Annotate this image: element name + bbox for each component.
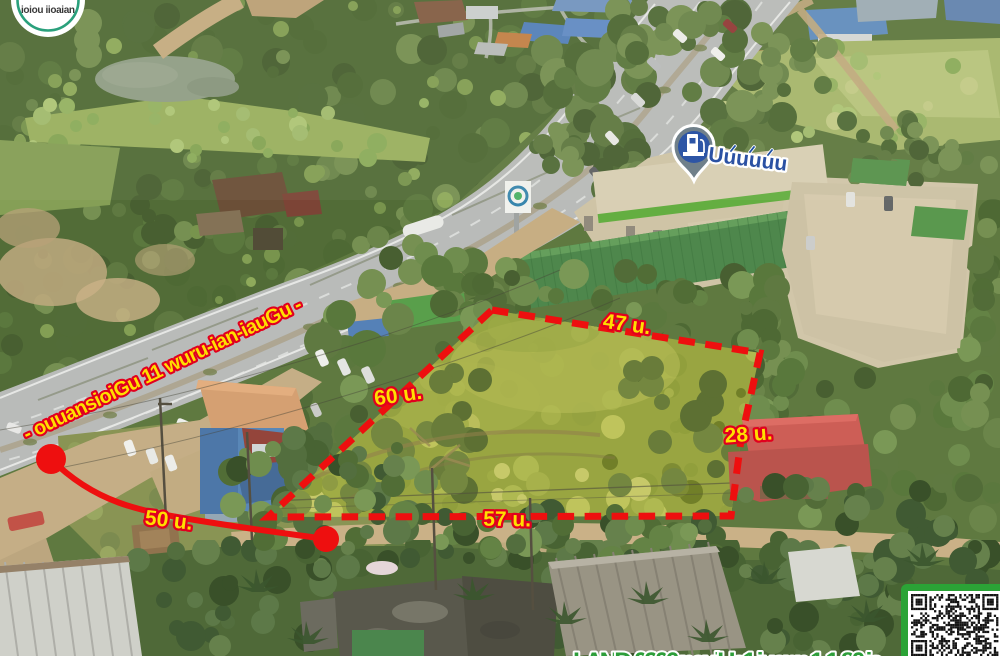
svg-text:LAND-0306 nauiUa1 iuann 1-1-80: LAND-0306 nauiUa1 iuann 1-1-80 is	[573, 648, 883, 656]
svg-text:28 u.: 28 u.	[724, 421, 773, 447]
svg-text:ioiou iioaian: ioiou iioaian	[21, 5, 75, 16]
svg-text:57 u.: 57 u.	[483, 508, 531, 532]
